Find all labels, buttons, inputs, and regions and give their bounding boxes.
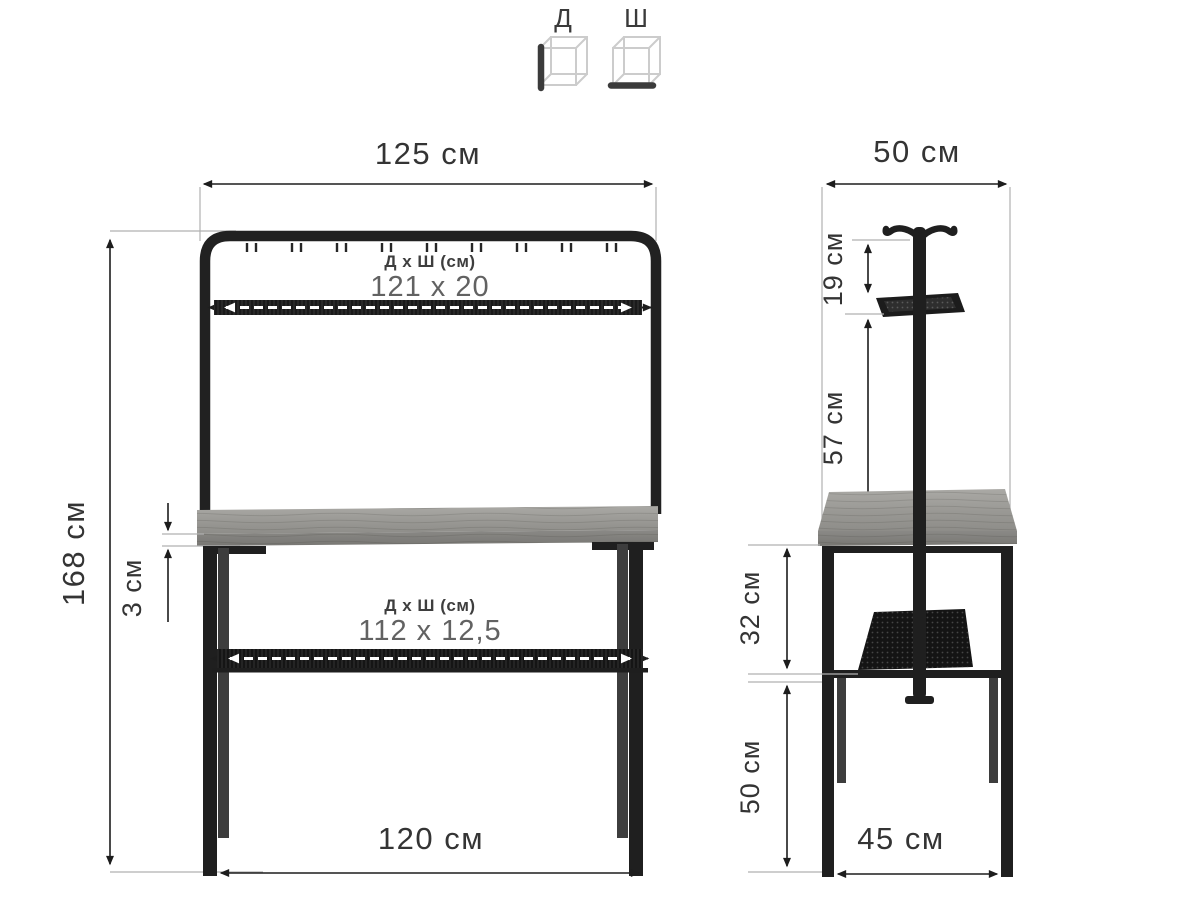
rear-left-leg	[218, 548, 229, 838]
side-front-left-leg	[822, 678, 834, 877]
height-value: 168 см	[56, 500, 91, 606]
bottom-depth-value: 45 см	[857, 821, 944, 856]
legend-depth-label: Д	[554, 3, 572, 33]
width-cube-icon	[611, 37, 660, 86]
legend-width-label: Ш	[624, 3, 648, 33]
front-left-leg	[203, 546, 217, 876]
lower-mesh-shelf: Д х Ш (см) 112 x 12,5	[212, 596, 648, 673]
apron-gap-value: 32 см	[735, 571, 765, 646]
bottom-width-value: 120 см	[378, 821, 484, 856]
lower-shelf-value: 112 x 12,5	[358, 615, 501, 647]
top-depth-value: 50 см	[873, 134, 960, 169]
top-width-value: 125 см	[375, 136, 481, 171]
dim-bottom-depth: 45 см	[838, 821, 997, 874]
rear-right-leg	[617, 544, 628, 838]
dim-hook-drop: 19 см	[818, 232, 910, 307]
upper-mesh-shelf: Д х Ш (см) 121 x 20	[209, 252, 651, 315]
furniture-dimension-diagram: Д Ш 125 см	[0, 0, 1200, 900]
side-right-post	[1001, 553, 1013, 671]
rail-hooks	[247, 243, 616, 252]
front-right-leg	[629, 542, 643, 876]
hanger-foot	[905, 696, 934, 704]
leg-clearance-value: 50 см	[735, 740, 765, 815]
dim-top-width: 125 см	[200, 136, 656, 241]
side-rear-left-leg	[837, 678, 846, 783]
dim-leg-clearance: 50 см	[735, 682, 822, 872]
rail-shelf-value: 121 x 20	[370, 271, 489, 303]
rail-shelf-label: Д х Ш (см)	[384, 252, 475, 271]
stand-height-value: 57 см	[818, 391, 848, 466]
tabletop-front	[197, 506, 658, 546]
lower-shelf-label: Д х Ш (см)	[384, 596, 475, 615]
side-front-right-leg	[1001, 678, 1013, 877]
diagram-svg: Д Ш 125 см	[0, 0, 1200, 900]
side-rear-right-leg	[989, 678, 998, 783]
hanger-tray	[845, 293, 965, 317]
legend: Д Ш	[540, 3, 660, 88]
top-thickness-value: 3 см	[117, 559, 147, 618]
hook-drop-value: 19 см	[818, 232, 848, 307]
side-view: 50 см 19 см 57 см	[735, 134, 1017, 877]
depth-cube-icon	[540, 37, 587, 88]
front-view: 125 см 168 см	[56, 136, 658, 876]
dim-apron-gap: 32 см	[735, 545, 858, 674]
side-left-post	[822, 553, 834, 671]
dim-bottom-width: 120 см	[221, 821, 639, 873]
